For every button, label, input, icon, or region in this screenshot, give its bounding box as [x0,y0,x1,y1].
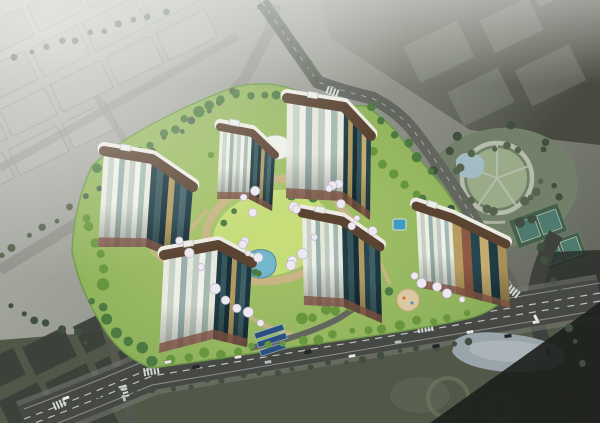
haze-band [0,0,600,85]
aerial-rendering-canvas [0,0,600,423]
rendering-image [0,0,600,423]
